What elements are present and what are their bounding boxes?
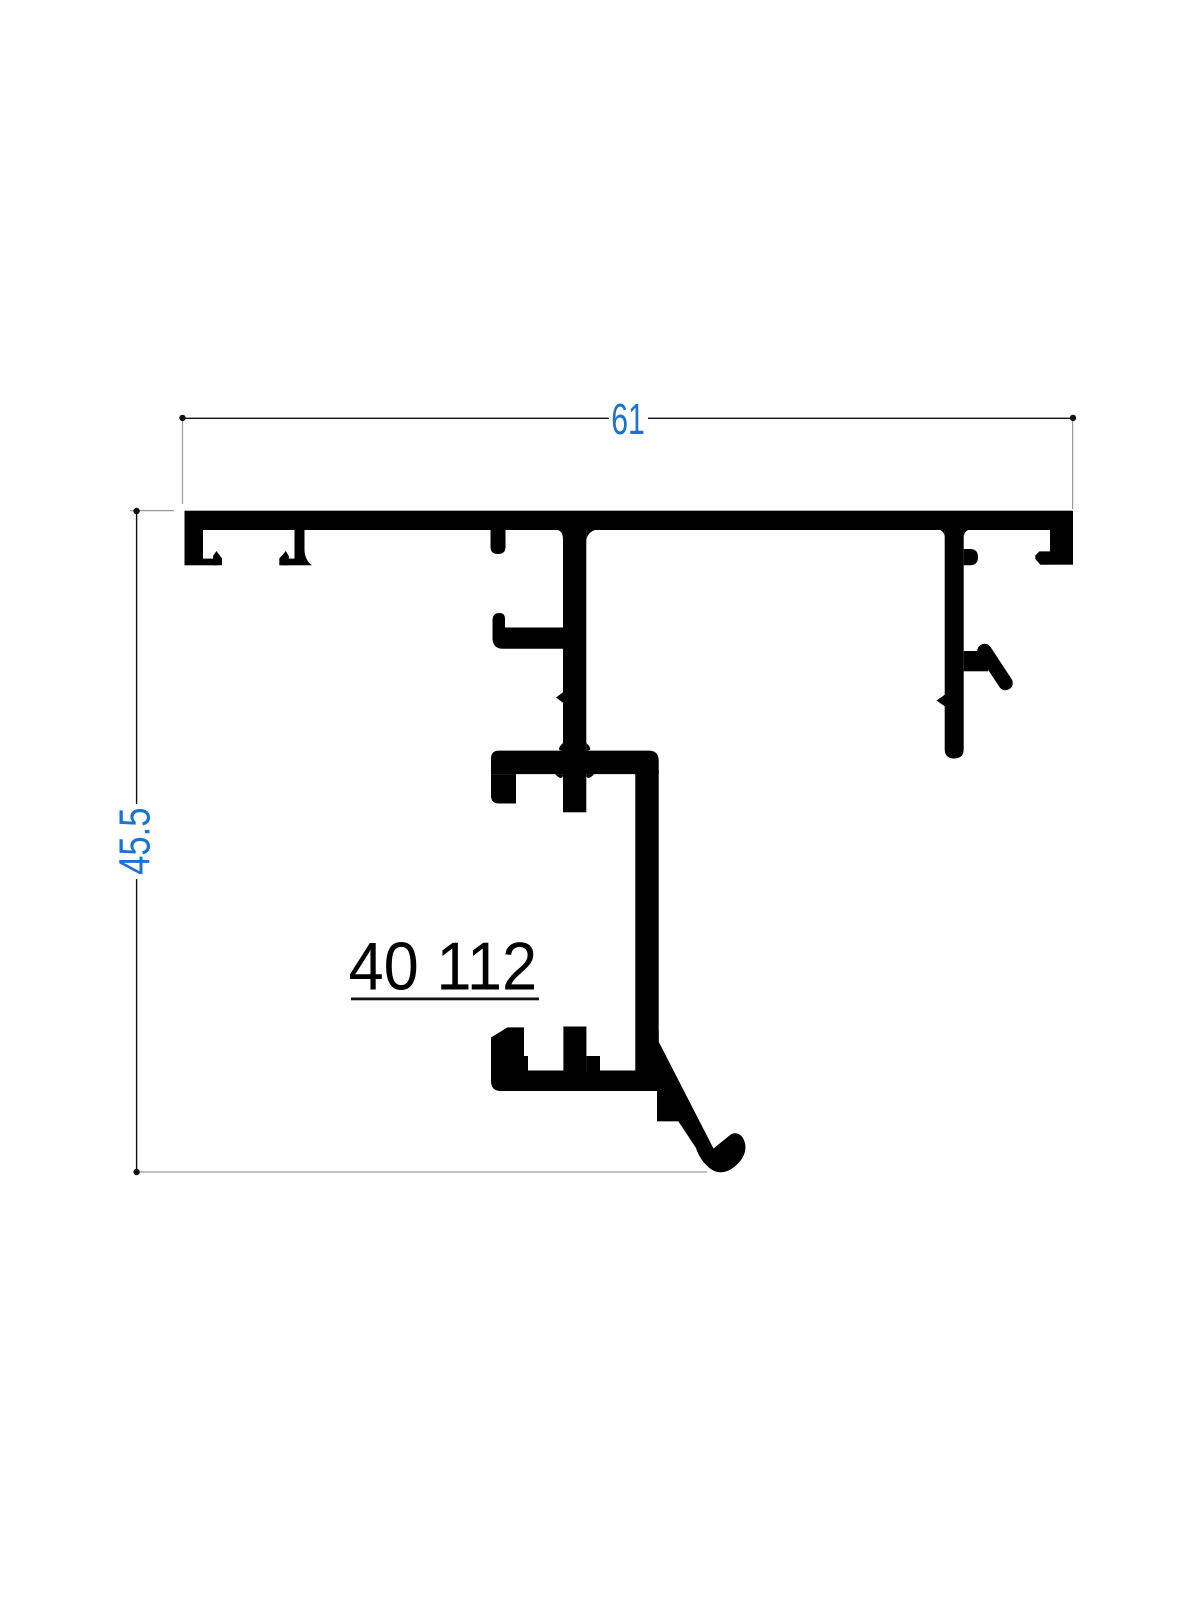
svg-text:45.5: 45.5 — [112, 808, 159, 875]
svg-text:61: 61 — [611, 395, 645, 444]
svg-text:40 112: 40 112 — [349, 929, 538, 1004]
